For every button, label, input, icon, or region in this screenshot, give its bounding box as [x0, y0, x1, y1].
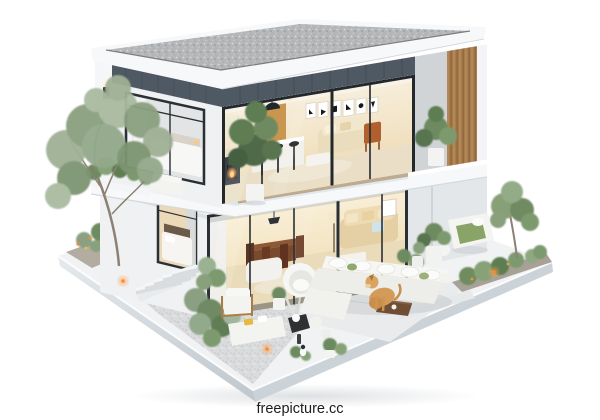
house-render: freepicture.cc	[0, 0, 600, 420]
green-cushion-2	[419, 273, 429, 280]
watermark-text: freepicture.cc	[256, 401, 343, 417]
screenshot: freepicture.cc	[0, 0, 600, 420]
wood-slat-screen	[447, 46, 477, 166]
corner-band-right	[477, 44, 487, 161]
green-cushion	[347, 264, 357, 271]
yellow-pillow	[244, 318, 254, 325]
wall-art-lower	[382, 199, 396, 217]
outdoor-armchair	[222, 288, 252, 318]
vase	[297, 334, 301, 344]
sheepskin	[292, 314, 300, 322]
